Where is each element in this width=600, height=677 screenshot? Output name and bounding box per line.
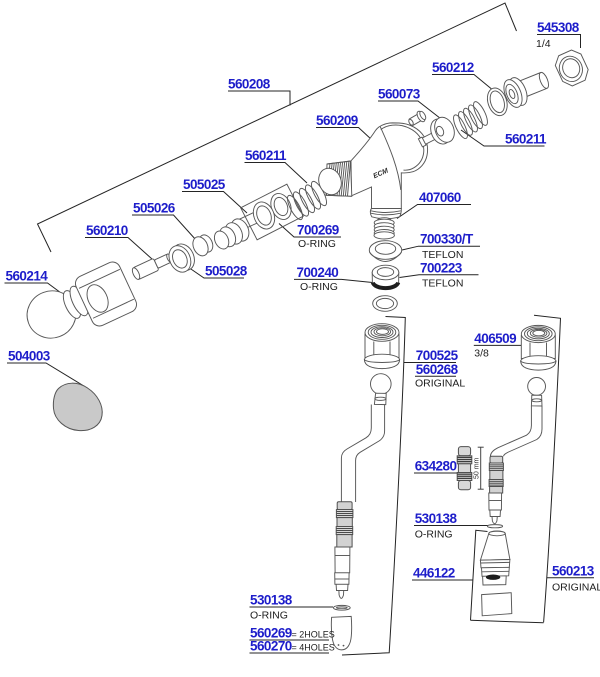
svg-text:O-RING: O-RING: [298, 238, 336, 250]
svg-text:ORIGINAL: ORIGINAL: [415, 378, 465, 390]
svg-text:560212: 560212: [432, 60, 474, 75]
svg-text:504003: 504003: [8, 349, 51, 364]
svg-text:505025: 505025: [183, 177, 226, 192]
svg-text:505026: 505026: [133, 201, 176, 216]
svg-text:O-RING: O-RING: [300, 281, 338, 293]
svg-text:560211: 560211: [245, 148, 287, 163]
svg-text:3/8: 3/8: [474, 348, 489, 360]
svg-text:560209: 560209: [316, 113, 358, 128]
svg-text:700525: 700525: [416, 348, 459, 363]
svg-text:634280: 634280: [415, 459, 457, 474]
svg-text:1/4: 1/4: [536, 38, 551, 50]
svg-text:50 mm: 50 mm: [474, 457, 481, 479]
svg-text:530138: 530138: [250, 593, 293, 608]
svg-text:O-RING: O-RING: [250, 610, 288, 622]
svg-text:700269: 700269: [297, 223, 339, 238]
svg-text:TEFLON: TEFLON: [422, 278, 463, 290]
svg-text:560208: 560208: [228, 77, 271, 92]
svg-text:560213: 560213: [552, 563, 595, 578]
svg-text:406509: 406509: [474, 331, 516, 346]
svg-text:505028: 505028: [205, 264, 248, 279]
svg-text:700223: 700223: [420, 260, 463, 275]
svg-text:TEFLON: TEFLON: [422, 249, 463, 261]
svg-text:ORIGINAL: ORIGINAL: [552, 582, 600, 594]
svg-text:560073: 560073: [378, 87, 421, 102]
svg-text:560268: 560268: [416, 362, 459, 377]
svg-text:530138: 530138: [415, 511, 458, 526]
svg-text:407060: 407060: [419, 190, 461, 205]
svg-text:560211: 560211: [505, 132, 547, 147]
svg-text:700330/T: 700330/T: [420, 232, 474, 247]
svg-text:= 4HOLES: = 4HOLES: [292, 643, 335, 653]
svg-text:560270: 560270: [250, 639, 292, 654]
svg-text:446122: 446122: [413, 566, 455, 581]
svg-text:560210: 560210: [86, 223, 128, 238]
svg-text:= 2HOLES: = 2HOLES: [292, 630, 335, 640]
svg-text:O-RING: O-RING: [415, 529, 453, 541]
svg-text:700240: 700240: [297, 265, 339, 280]
svg-text:560214: 560214: [6, 269, 49, 284]
svg-text:545308: 545308: [537, 20, 580, 35]
